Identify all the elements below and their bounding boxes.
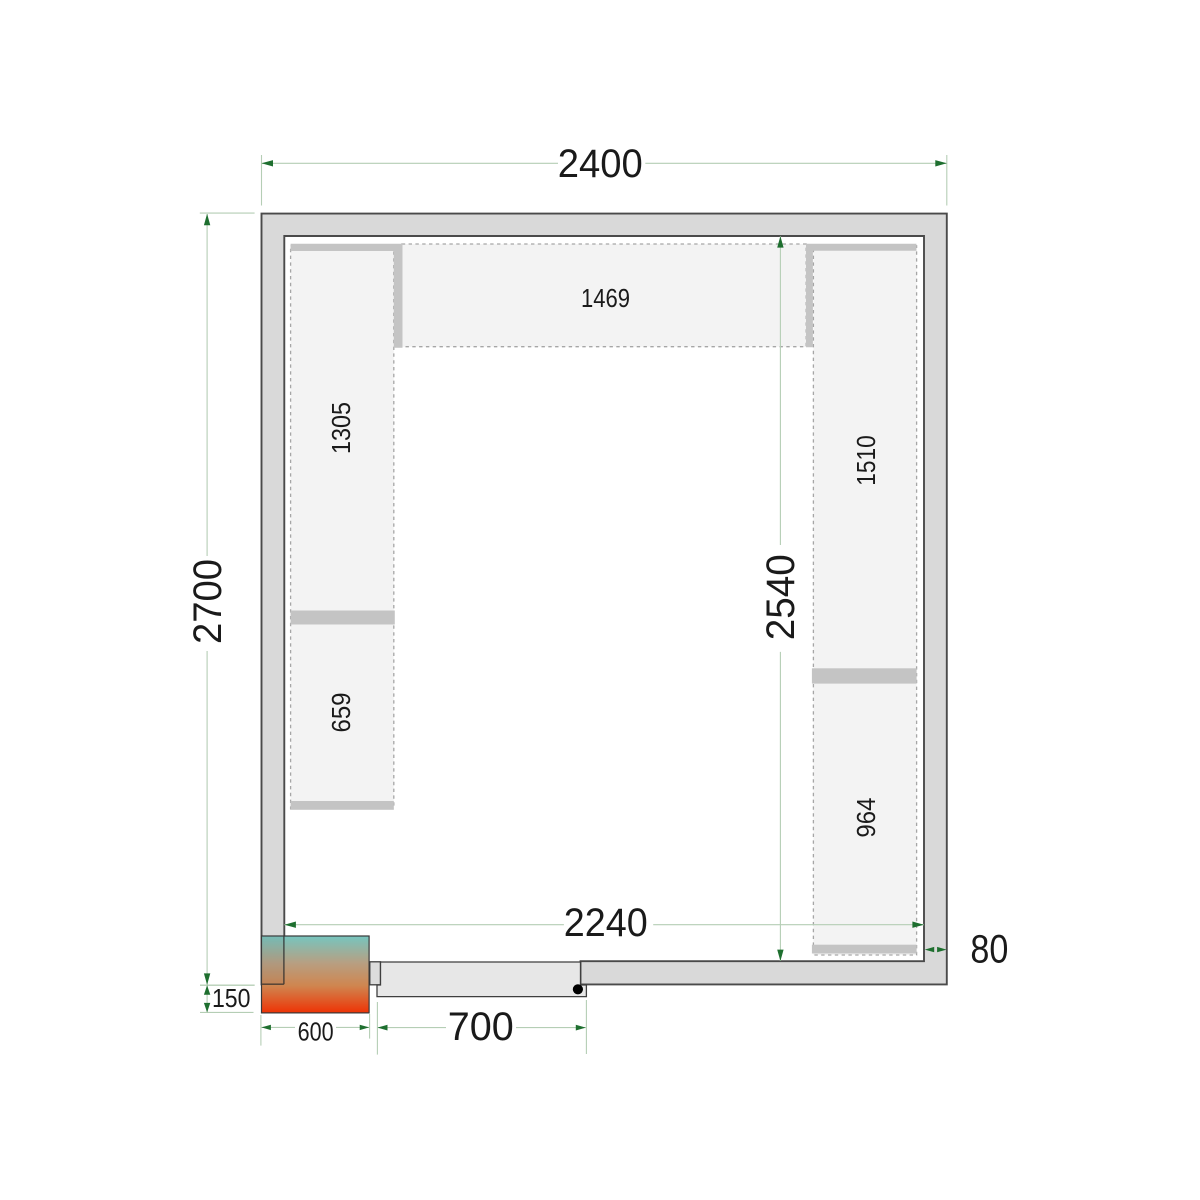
svg-text:2400: 2400 <box>558 142 643 186</box>
svg-text:2240: 2240 <box>564 901 648 945</box>
svg-text:600: 600 <box>298 1018 334 1046</box>
svg-text:1469: 1469 <box>581 285 630 313</box>
svg-text:80: 80 <box>970 928 1008 972</box>
svg-text:2700: 2700 <box>186 559 230 644</box>
svg-text:700: 700 <box>448 1005 514 1049</box>
svg-text:1305: 1305 <box>328 402 356 454</box>
svg-text:659: 659 <box>328 693 356 733</box>
svg-text:2540: 2540 <box>759 554 803 640</box>
svg-text:150: 150 <box>212 985 251 1013</box>
svg-text:964: 964 <box>853 798 881 838</box>
svg-text:1510: 1510 <box>853 435 881 486</box>
